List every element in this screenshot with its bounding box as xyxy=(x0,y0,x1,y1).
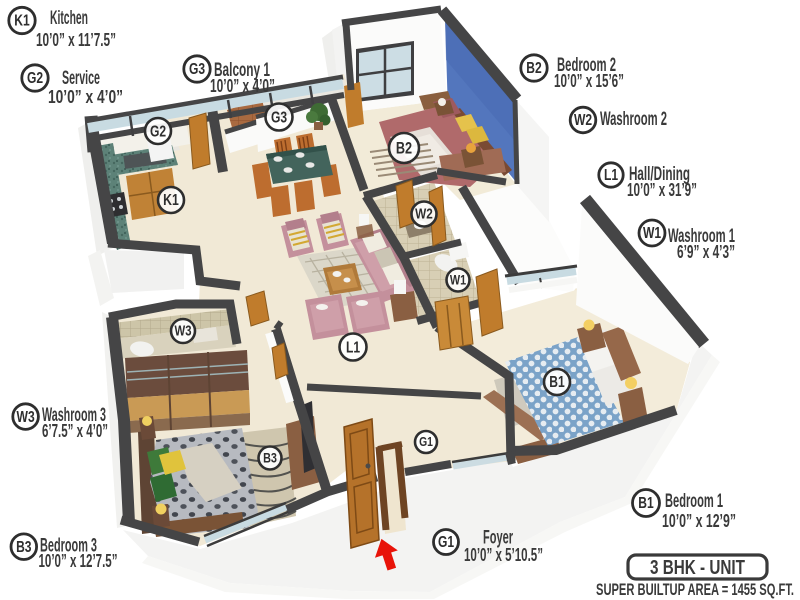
svg-text:SUPER BUILTUP AREA = 1455 SQ.F: SUPER BUILTUP AREA = 1455 SQ.FT. xyxy=(596,581,794,599)
svg-text:B2: B2 xyxy=(526,59,542,77)
svg-text:10’0” x 4’0”: 10’0” x 4’0” xyxy=(210,76,275,96)
svg-text:10’0” x 12’9”: 10’0” x 12’9” xyxy=(662,511,736,531)
svg-text:B1: B1 xyxy=(549,373,565,391)
svg-text:W3: W3 xyxy=(175,322,192,339)
svg-text:B2: B2 xyxy=(396,140,412,158)
svg-text:W2: W2 xyxy=(574,111,592,129)
svg-text:6’9” x 4’3”: 6’9” x 4’3” xyxy=(677,242,735,262)
svg-text:Washroom 2: Washroom 2 xyxy=(600,108,667,130)
svg-text:Service: Service xyxy=(62,67,100,89)
svg-text:B3: B3 xyxy=(263,450,277,466)
svg-text:10’0” x 5’10.5”: 10’0” x 5’10.5” xyxy=(464,545,543,565)
svg-text:3 BHK - UNIT: 3 BHK - UNIT xyxy=(650,557,745,579)
svg-text:W2: W2 xyxy=(415,205,433,222)
svg-text:G1: G1 xyxy=(438,533,454,551)
svg-text:G1: G1 xyxy=(419,434,433,450)
svg-text:6’7.5” x 4’0”: 6’7.5” x 4’0” xyxy=(42,421,108,441)
svg-text:10’0” x 11’7.5”: 10’0” x 11’7.5” xyxy=(36,30,116,50)
svg-text:G2: G2 xyxy=(150,122,166,140)
svg-text:K1: K1 xyxy=(163,190,179,208)
svg-text:10’0” x 15’6”: 10’0” x 15’6” xyxy=(554,71,624,91)
svg-text:B1: B1 xyxy=(638,494,654,512)
svg-text:Kitchen: Kitchen xyxy=(50,7,88,29)
svg-text:L1: L1 xyxy=(604,166,618,184)
svg-text:10’0” x 4’0”: 10’0” x 4’0” xyxy=(48,87,123,107)
svg-text:10’0” x 31’9”: 10’0” x 31’9” xyxy=(627,180,697,200)
svg-text:Bedroom 1: Bedroom 1 xyxy=(665,490,723,512)
svg-text:B3: B3 xyxy=(16,537,32,555)
svg-text:10’0” x 12’7.5”: 10’0” x 12’7.5” xyxy=(39,551,118,571)
svg-text:W1: W1 xyxy=(643,224,661,242)
svg-text:W3: W3 xyxy=(17,407,35,425)
svg-text:G2: G2 xyxy=(27,69,43,87)
svg-text:W1: W1 xyxy=(450,272,466,288)
svg-text:L1: L1 xyxy=(346,338,360,356)
svg-text:K1: K1 xyxy=(14,11,30,29)
svg-text:G3: G3 xyxy=(189,60,205,78)
svg-text:G3: G3 xyxy=(271,108,287,126)
